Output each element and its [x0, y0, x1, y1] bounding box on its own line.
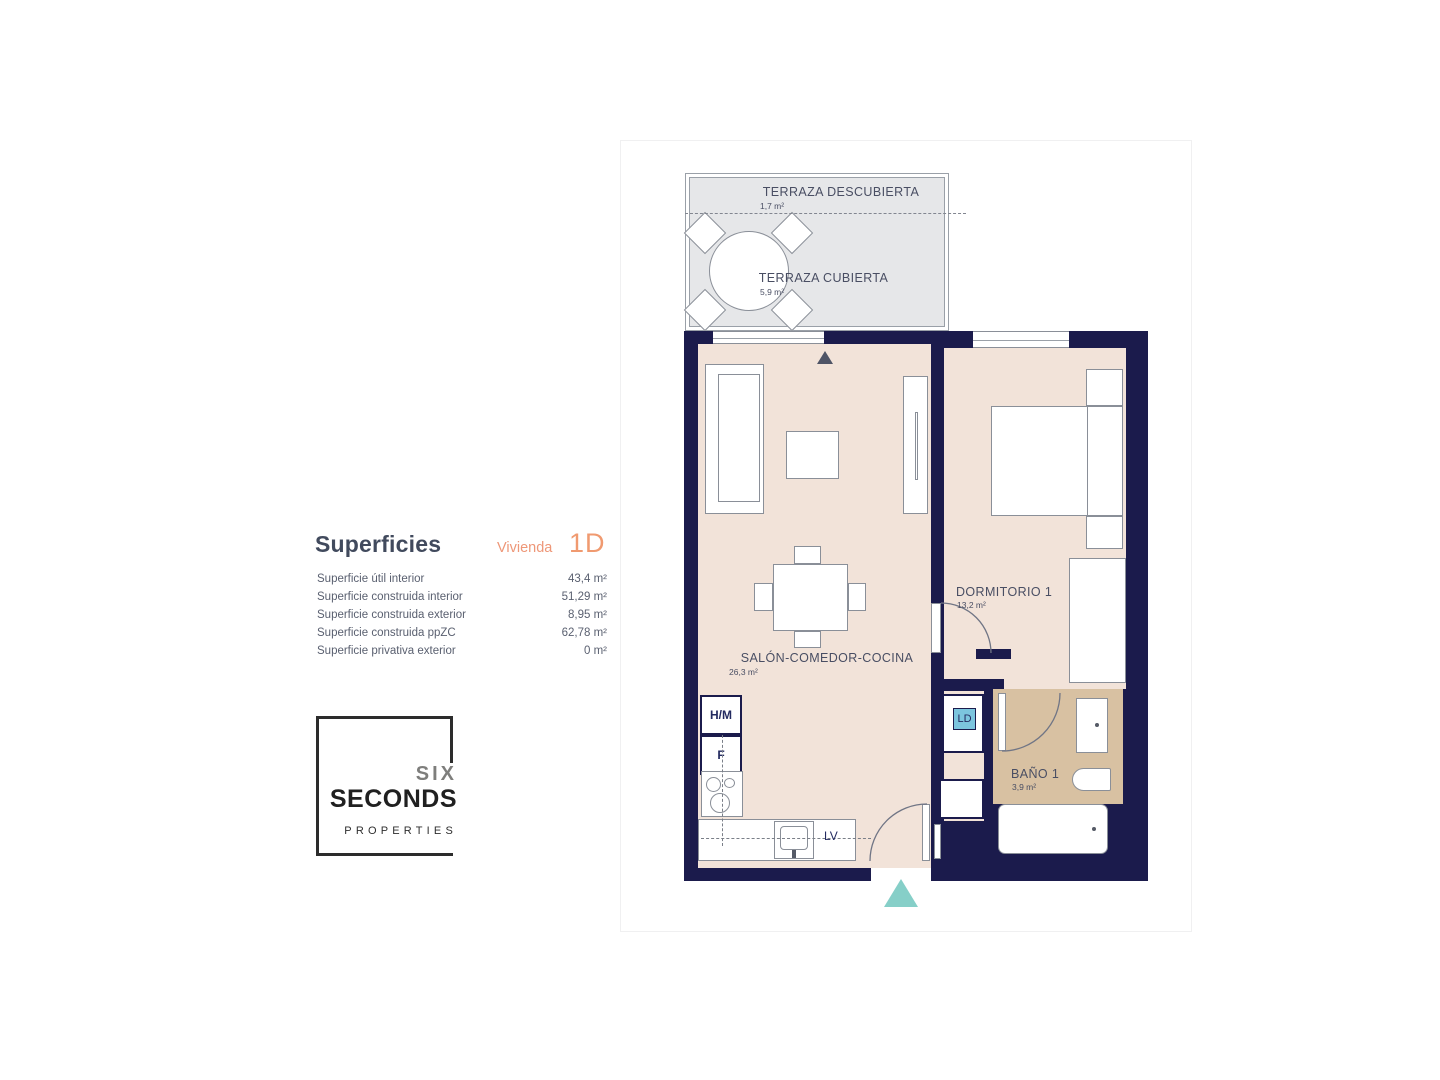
- bed-headboard-line: [1087, 407, 1088, 517]
- logo-word-seconds: SECONDS: [330, 785, 457, 814]
- surfaces-title: Superficies: [315, 531, 441, 558]
- bathroom-door-leaf: [998, 693, 1006, 751]
- washer-box: LD: [942, 694, 984, 753]
- dishwasher-label: LV: [824, 829, 838, 843]
- bathroom-area: 3,9 m²: [1012, 782, 1036, 792]
- washer-highlight: LD: [953, 708, 976, 730]
- bathtub: [998, 804, 1108, 854]
- wall-stub: [976, 649, 1011, 659]
- row-label: Superficie útil interior: [317, 570, 424, 588]
- burner: [710, 793, 730, 813]
- row-value: 0 m²: [584, 642, 607, 660]
- terrace-covered-area: 5,9 m²: [760, 287, 784, 297]
- row-value: 8,95 m²: [568, 606, 607, 624]
- logo-border-segment: [450, 719, 453, 763]
- surfaces-table: Superficie útil interior 43,4 m² Superfi…: [317, 570, 607, 660]
- table-row: Superficie construida exterior 8,95 m²: [317, 606, 607, 624]
- unit-value: 1D: [569, 528, 606, 559]
- sink-tap: [792, 850, 796, 858]
- coffee-table: [786, 431, 839, 479]
- sink-drain: [1095, 723, 1099, 727]
- burner: [706, 777, 721, 792]
- terrace-open-area: 1,7 m²: [760, 201, 784, 211]
- tv: [915, 412, 918, 480]
- table-row: Superficie privativa exterior 0 m²: [317, 642, 607, 660]
- nightstand: [1086, 369, 1123, 406]
- unit-label: Vivienda: [497, 540, 552, 556]
- entrance-door-leaf: [922, 804, 930, 861]
- row-value: 51,29 m²: [562, 588, 607, 606]
- six-seconds-logo: SIX SECONDS PROPERTIES: [316, 716, 453, 856]
- bathroom-label: BAÑO 1: [1011, 767, 1059, 781]
- bedroom-label: DORMITORIO 1: [956, 585, 1052, 599]
- oven-microwave-box: H/M: [700, 695, 742, 735]
- nightstand: [1086, 516, 1123, 549]
- toilet: [1072, 768, 1111, 791]
- dining-table: [773, 564, 848, 631]
- entrance-marker: [884, 879, 918, 907]
- bedroom-window: [973, 331, 1069, 348]
- dining-chair: [794, 631, 821, 648]
- logo-word-six: SIX: [416, 763, 457, 785]
- surfaces-panel: Superficies Vivienda 1D Superficie útil …: [315, 528, 615, 658]
- kitchen-sink: [774, 821, 814, 859]
- dining-chair: [754, 583, 773, 611]
- tv-unit: [903, 376, 928, 514]
- dining-chair: [848, 583, 866, 611]
- sofa-seat: [718, 374, 760, 502]
- row-label: Superficie construida exterior: [317, 606, 466, 624]
- logo-word-properties: PROPERTIES: [344, 826, 457, 837]
- floor-plan: TERRAZA DESCUBIERTA 1,7 m² TERRAZA CUBIE…: [620, 140, 1192, 932]
- terrace-boundary-dashed-line: [685, 213, 966, 214]
- bathtub-drain: [1092, 827, 1096, 831]
- bathroom-sink: [1076, 698, 1108, 753]
- table-row: Superficie construida interior 51,29 m²: [317, 588, 607, 606]
- table-row: Superficie útil interior 43,4 m²: [317, 570, 607, 588]
- row-label: Superficie construida ppZC: [317, 624, 456, 642]
- row-value: 43,4 m²: [568, 570, 607, 588]
- terrace-covered-label: TERRAZA CUBIERTA: [741, 271, 906, 285]
- kitchen-dashed-line: [722, 735, 723, 846]
- utility-box: [939, 779, 984, 819]
- living-room-window: [713, 331, 824, 344]
- window-frame-line: [713, 338, 824, 339]
- row-label: Superficie privativa exterior: [317, 642, 456, 660]
- wardrobe: [1069, 558, 1126, 683]
- living-room-area: 26,3 m²: [729, 667, 758, 677]
- wall-stub: [944, 679, 1004, 689]
- cabinet-strip: [934, 824, 941, 859]
- fridge-label: F: [717, 748, 724, 762]
- bedroom-door-leaf: [931, 603, 941, 653]
- dining-chair: [794, 546, 821, 564]
- row-value: 62,78 m²: [562, 624, 607, 642]
- table-row: Superficie construida ppZC 62,78 m²: [317, 624, 607, 642]
- living-room-label: SALÓN-COMEDOR-COCINA: [727, 651, 927, 665]
- window-frame-line: [973, 340, 1069, 341]
- kitchen-dashed-line: [701, 838, 871, 839]
- oven-microwave-label: H/M: [710, 708, 732, 722]
- fridge-box: F: [700, 735, 742, 775]
- terrace-open-label: TERRAZA DESCUBIERTA: [741, 185, 941, 199]
- washer-label: LD: [957, 713, 971, 725]
- row-label: Superficie construida interior: [317, 588, 463, 606]
- logo-text: SIX SECONDS PROPERTIES: [330, 763, 457, 837]
- bedroom-area: 13,2 m²: [957, 600, 986, 610]
- orientation-triangle: [817, 351, 833, 364]
- sofa: [705, 364, 764, 514]
- burner: [724, 778, 735, 788]
- bed: [991, 406, 1123, 516]
